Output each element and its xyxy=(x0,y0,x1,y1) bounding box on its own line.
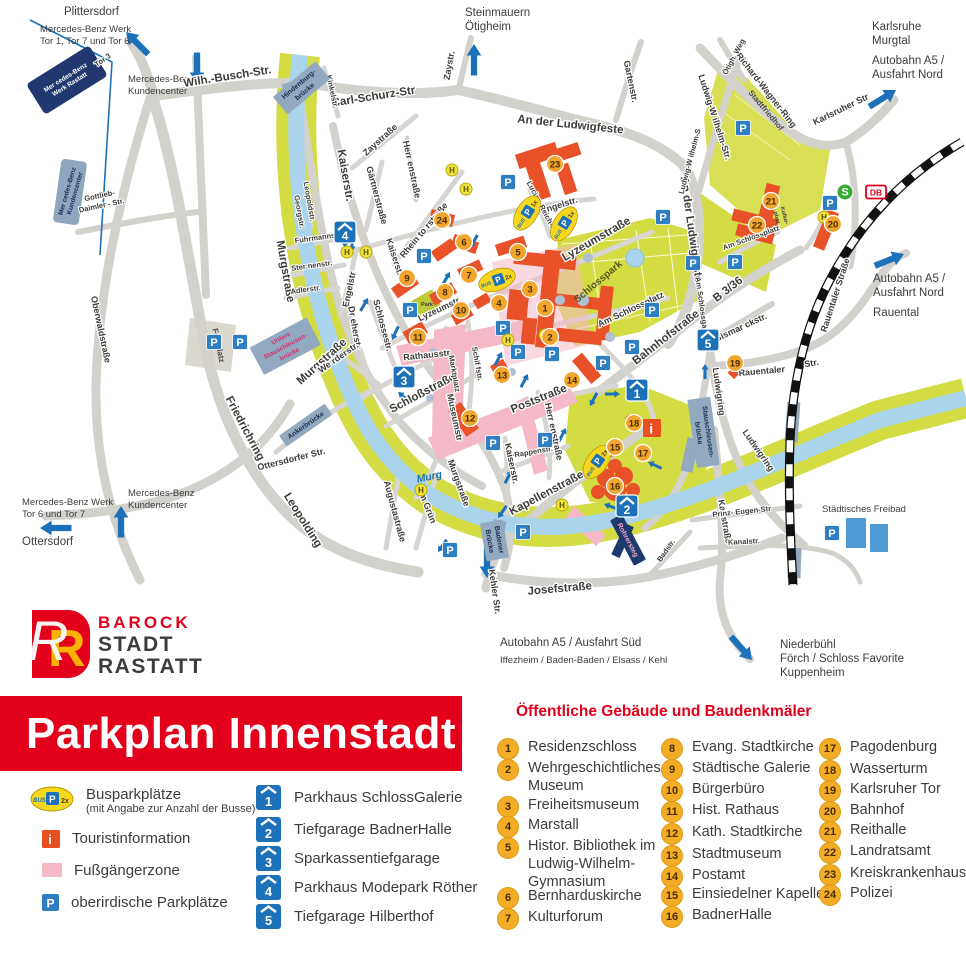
garage-legend-item-5: 5 Tiefgarage Hilberthof xyxy=(256,904,434,929)
parking-icon: P xyxy=(596,356,611,371)
parking-icon: P xyxy=(486,436,501,451)
svg-text:22: 22 xyxy=(752,220,763,231)
map-label: Ottersdorfer Str. xyxy=(256,446,326,473)
svg-text:P: P xyxy=(47,897,55,911)
buildings-heading: Öffentliche Gebäude und Baudenkmäler xyxy=(516,703,811,721)
landmark-marker-10: 10 xyxy=(453,302,470,319)
map-label: Zaystr. xyxy=(442,50,457,80)
map-label: Städtisches Freibad xyxy=(822,504,906,515)
map-label: Park xyxy=(421,302,434,308)
svg-text:5: 5 xyxy=(705,337,712,351)
map-label: Kaiserstr. xyxy=(334,149,355,203)
svg-text:P: P xyxy=(599,358,606,370)
map-label: Iffezheim / Baden-Baden / Elsass / Kehl xyxy=(500,655,667,666)
direction-arrow-icon xyxy=(40,521,72,536)
map-label: Bismar ckstr. xyxy=(713,311,768,344)
landmark-marker-2: 2 xyxy=(542,329,559,346)
parking-icon: P xyxy=(686,256,701,271)
building-number-badge: 21 xyxy=(819,821,841,843)
building-label: Bernharduskirche xyxy=(528,887,679,905)
svg-text:1: 1 xyxy=(542,303,548,314)
landmark-marker-1: 1 xyxy=(537,300,554,317)
svg-text:4: 4 xyxy=(496,298,502,309)
building-label: Kreiskrankenhaus xyxy=(850,864,966,882)
map-label: Engelstr xyxy=(340,270,357,308)
svg-text:18: 18 xyxy=(629,418,640,429)
tourist-info-icon: i xyxy=(643,419,661,437)
building-item-16: 16 BadnerHalle xyxy=(661,906,843,928)
svg-text:H: H xyxy=(363,248,369,257)
building-number-badge: 16 xyxy=(661,906,683,928)
svg-text:i: i xyxy=(649,421,653,437)
svg-text:4: 4 xyxy=(342,229,349,243)
svg-text:Herr enstraße: Herr enstraße xyxy=(401,140,423,199)
bus-stop-icon: H xyxy=(446,164,458,176)
svg-text:S: S xyxy=(841,187,848,199)
svg-text:24: 24 xyxy=(437,215,448,226)
building-number-badge: 24 xyxy=(819,884,841,906)
svg-text:Mercedes-Benz WerkTor 1, Tor 7: Mercedes-Benz WerkTor 1, Tor 7 und Tor 6 xyxy=(40,24,131,47)
svg-text:Engelstr: Engelstr xyxy=(340,270,357,308)
map-canvas: Mer cedes-BenzWerk RastattMer cedes-Benz… xyxy=(0,0,966,690)
svg-text:Ankerbrücke: Ankerbrücke xyxy=(287,411,326,441)
city-map: Mer cedes-BenzWerk RastattMer cedes-Benz… xyxy=(0,0,966,690)
legend-bus-label: Busparkplätze xyxy=(86,786,255,803)
svg-text:Park: Park xyxy=(421,302,434,308)
building-item-18: 18 Wasserturm xyxy=(819,760,966,782)
svg-text:12: 12 xyxy=(465,413,476,424)
svg-text:i: i xyxy=(48,832,52,847)
building-number-badge: 20 xyxy=(819,801,841,823)
landmark-marker-13: 13 xyxy=(494,367,511,384)
svg-text:11: 11 xyxy=(413,332,424,343)
parking-icon: P xyxy=(728,255,743,270)
db-icon: DB xyxy=(866,186,886,199)
svg-text:Ottersdorfer Str.: Ottersdorfer Str. xyxy=(256,446,326,473)
building-number-badge: 5 xyxy=(497,837,519,859)
building-label: BadnerHalle xyxy=(692,906,843,924)
building-label: Kulturforum xyxy=(528,908,679,926)
svg-text:Autobahn A5 / Ausfahrt Süd: Autobahn A5 / Ausfahrt Süd xyxy=(500,637,641,649)
garage-icon: 4 xyxy=(256,875,281,900)
parking-icon: P xyxy=(538,433,553,448)
garage-label: Sparkassentiefgarage xyxy=(294,850,440,867)
map-label: Autobahn A5 / Ausfahrt Süd xyxy=(500,637,641,649)
city-logo-emblem: R R xyxy=(26,610,90,678)
bus-stop-icon: H xyxy=(360,246,372,258)
building-item-1: 1 Residenzschloss xyxy=(497,738,679,760)
garage-legend-item-2: 2 Tiefgarage BadnerHalle xyxy=(256,817,452,842)
parking-icon: P xyxy=(443,543,458,558)
map-label: Plittersdorf xyxy=(64,6,120,18)
landmark-marker-20: 20 xyxy=(825,216,842,233)
parking-icon: P xyxy=(516,525,531,540)
emblem-r-white: R xyxy=(28,610,68,672)
building-label: Residenzschloss xyxy=(528,738,679,756)
logo-line-stadt: STADT xyxy=(98,634,203,656)
parking-icon: P xyxy=(501,175,516,190)
map-label: Kanalstr. xyxy=(728,536,760,547)
building-number-badge: 4 xyxy=(497,816,519,838)
svg-text:KarlsruheMurgtal: KarlsruheMurgtal xyxy=(872,21,921,47)
svg-text:23: 23 xyxy=(550,159,561,170)
building-number-badge: 23 xyxy=(819,864,841,886)
bus-stop-icon: H xyxy=(460,183,472,195)
map-label: Karlsruher Str xyxy=(811,91,870,127)
landmark-marker-11: 11 xyxy=(410,329,427,346)
svg-text:Zaystraße: Zaystraße xyxy=(361,122,399,158)
building-label: Freiheitsmuseum xyxy=(528,796,679,814)
svg-text:P: P xyxy=(548,349,555,361)
one-way-arrow-icon xyxy=(518,372,531,389)
building-label: Pagodenburg xyxy=(850,738,966,756)
svg-text:2: 2 xyxy=(547,332,552,343)
parking-icon: P xyxy=(42,894,59,911)
landmark-marker-8: 8 xyxy=(437,284,454,301)
svg-text:BUS: BUS xyxy=(33,798,46,804)
building-number-badge: 3 xyxy=(497,796,519,818)
svg-text:NiederbühlFörch / Schloss Favo: NiederbühlFörch / Schloss FavoriteKuppen… xyxy=(780,639,904,679)
building-item-13: 13 Stadtmuseum xyxy=(661,845,843,867)
building-label: Karlsruher Tor xyxy=(850,780,966,798)
garage-legend-item-1: 1 Parkhaus SchlossGalerie xyxy=(256,785,462,810)
legend-tourist-label: Touristinformation xyxy=(72,830,190,847)
building-label: Landratsamt xyxy=(850,842,966,860)
svg-text:2: 2 xyxy=(624,503,631,517)
legend-pedestrian: Fußgängerzone xyxy=(42,862,180,879)
parkplan-poster: Mer cedes-BenzWerk RastattMer cedes-Benz… xyxy=(0,0,966,966)
landmark-marker-17: 17 xyxy=(635,445,652,462)
building-item-15: 15 Einsiedelner Kapelle xyxy=(661,885,843,907)
svg-text:17: 17 xyxy=(638,448,649,459)
legend-parking-label: oberirdische Parkplätze xyxy=(71,894,228,911)
building-number-badge: 9 xyxy=(661,759,683,781)
landmark-marker-9: 9 xyxy=(399,270,416,287)
parking-icon: P xyxy=(207,335,222,350)
svg-text:Kaiserstr.: Kaiserstr. xyxy=(334,149,355,203)
building-item-3: 3 Freiheitsmuseum xyxy=(497,796,679,818)
garage-label: Tiefgarage BadnerHalle xyxy=(294,821,452,838)
building-item-9: 9 Städtische Galerie xyxy=(661,759,843,781)
svg-text:3: 3 xyxy=(401,374,408,388)
title-banner: Parkplan Innenstadt xyxy=(0,696,462,771)
svg-text:Bismar ckstr.: Bismar ckstr. xyxy=(713,311,768,344)
map-label: Mercedes-BenzKundencenter xyxy=(128,488,195,511)
city-logo-wordmark: BAROCK STADT RASTATT xyxy=(98,612,203,678)
landmark-marker-4: 4 xyxy=(491,295,508,312)
page-title: Parkplan Innenstadt xyxy=(0,696,462,758)
parking-icon: P xyxy=(736,121,751,136)
svg-text:Autobahn A5 /Ausfahrt Nord: Autobahn A5 /Ausfahrt Nord xyxy=(873,273,946,299)
building-label: Marstall xyxy=(528,816,679,834)
landmark-marker-6: 6 xyxy=(456,234,473,251)
mercedes-box: Mer cedes-BenzWerk Rastatt xyxy=(26,45,108,115)
building-number-badge: 15 xyxy=(661,885,683,907)
city-logo: R R BAROCK STADT RASTATT xyxy=(26,610,256,682)
legend-tourist-info: i Touristinformation xyxy=(42,830,190,848)
svg-text:P: P xyxy=(514,347,521,359)
building-item-4: 4 Marstall xyxy=(497,816,679,838)
map-label: Str. xyxy=(803,357,819,369)
building-item-20: 20 Bahnhof xyxy=(819,801,966,823)
svg-text:H: H xyxy=(344,248,350,257)
svg-text:Städtisches Freibad: Städtisches Freibad xyxy=(822,504,906,515)
garage-icon: 5 xyxy=(256,904,281,929)
svg-text:20: 20 xyxy=(828,219,839,230)
parking-icon: P xyxy=(496,321,511,336)
garage-icon: 1 xyxy=(256,785,281,810)
svg-text:19: 19 xyxy=(730,358,741,369)
map-label: Ottersdorf xyxy=(22,536,74,548)
landmark-marker-7: 7 xyxy=(461,267,478,284)
landmark-marker-12: 12 xyxy=(462,410,479,427)
landmark-marker-18: 18 xyxy=(626,415,643,432)
parking-icon: P xyxy=(645,303,660,318)
building-number-badge: 8 xyxy=(661,738,683,760)
svg-text:21: 21 xyxy=(766,196,777,207)
parking-icon: P xyxy=(825,526,840,541)
svg-text:9: 9 xyxy=(404,273,409,284)
svg-text:2: 2 xyxy=(265,826,272,841)
svg-text:P: P xyxy=(499,323,506,335)
map-label: SteinmauernÖtigheim xyxy=(465,7,530,33)
garage-label: Parkhaus Modepark Röther xyxy=(294,879,477,896)
bus-stop-icon: H xyxy=(341,246,353,258)
svg-text:15: 15 xyxy=(610,442,621,453)
building-item-5: 5 Histor. Bibliothek im Ludwig-Wilhelm-G… xyxy=(497,837,679,891)
building-number-badge: 1 xyxy=(497,738,519,760)
svg-text:H: H xyxy=(418,486,424,495)
svg-text:P: P xyxy=(406,305,413,317)
building-label: Histor. Bibliothek im Ludwig-Wilhelm-Gym… xyxy=(528,837,679,891)
building-item-11: 11 Hist. Rathaus xyxy=(661,801,843,823)
legend-bus-parking: BUS P 2x Busparkplätze (mit Angabe zur A… xyxy=(30,786,255,815)
building-item-24: 24 Polizei xyxy=(819,884,966,906)
parking-icon: P xyxy=(417,249,432,264)
svg-text:6: 6 xyxy=(461,237,466,248)
garage-label: Parkhaus SchlossGalerie xyxy=(294,789,462,806)
logo-line-rastatt: RASTATT xyxy=(98,656,203,678)
bus-stop-icon: H xyxy=(556,499,568,511)
building-number-badge: 7 xyxy=(497,908,519,930)
svg-text:16: 16 xyxy=(610,481,621,492)
svg-text:8: 8 xyxy=(442,287,447,298)
building-number-badge: 2 xyxy=(497,759,519,781)
svg-text:Mercedes-BenzKundencenter: Mercedes-BenzKundencenter xyxy=(128,488,195,511)
svg-text:5: 5 xyxy=(265,913,272,928)
svg-text:P: P xyxy=(828,528,835,540)
svg-text:P: P xyxy=(420,251,427,263)
svg-text:P: P xyxy=(504,177,511,189)
landmark-marker-23: 23 xyxy=(547,156,564,173)
svg-text:Kanalstr.: Kanalstr. xyxy=(728,536,760,547)
svg-text:1: 1 xyxy=(634,387,641,401)
parking-icon: P xyxy=(545,347,560,362)
svg-text:3: 3 xyxy=(265,855,272,870)
building-number-badge: 11 xyxy=(661,801,683,823)
svg-text:P: P xyxy=(519,527,526,539)
svg-text:P: P xyxy=(648,305,655,317)
garage-marker-2: 2 xyxy=(616,495,638,517)
building-label: Bahnhof xyxy=(850,801,966,819)
svg-text:5: 5 xyxy=(515,247,521,258)
garage-label: Tiefgarage Hilberthof xyxy=(294,908,434,925)
building-item-19: 19 Karlsruher Tor xyxy=(819,780,966,802)
garage-legend-item-4: 4 Parkhaus Modepark Röther xyxy=(256,875,477,900)
svg-text:H: H xyxy=(559,501,565,510)
landmark-marker-19: 19 xyxy=(727,355,744,372)
svg-text:H: H xyxy=(505,336,511,345)
map-label: Herr enstraße xyxy=(401,140,423,199)
building-label: Polizei xyxy=(850,884,966,902)
svg-text:10: 10 xyxy=(456,305,467,316)
building-item-8: 8 Evang. Stadtkirche xyxy=(661,738,843,760)
parking-icon: P xyxy=(823,196,838,211)
svg-text:7: 7 xyxy=(466,270,471,281)
svg-text:Karlsruher Str: Karlsruher Str xyxy=(811,91,870,127)
building-item-21: 21 Reithalle xyxy=(819,821,966,843)
svg-text:14: 14 xyxy=(567,375,578,386)
building-number-badge: 12 xyxy=(661,823,683,845)
building-item-23: 23 Kreiskrankenhaus xyxy=(819,864,966,886)
svg-text:P: P xyxy=(541,435,548,447)
svg-text:DB: DB xyxy=(870,187,882,197)
building-item-12: 12 Kath. Stadtkirche xyxy=(661,823,843,845)
legend-surface-parking: P oberirdische Parkplätze xyxy=(42,894,228,911)
svg-text:P: P xyxy=(659,212,666,224)
parking-icon: P xyxy=(403,303,418,318)
building-item-22: 22 Landratsamt xyxy=(819,842,966,864)
svg-text:P: P xyxy=(49,795,56,806)
pedestrian-zone-swatch xyxy=(42,863,62,877)
svg-text:1: 1 xyxy=(265,794,272,809)
landmark-marker-5: 5 xyxy=(510,244,527,261)
svg-text:Iffezheim / Baden-Baden / Elsa: Iffezheim / Baden-Baden / Elsass / Kehl xyxy=(500,655,667,666)
building-number-badge: 17 xyxy=(819,738,841,760)
landmark-marker-3: 3 xyxy=(522,281,539,298)
tourist-info-icon: i xyxy=(42,830,60,848)
building-item-2: 2 Wehrgeschichtliches Museum xyxy=(497,759,679,795)
svg-text:P: P xyxy=(210,337,217,349)
schlosspark-pond xyxy=(626,249,644,267)
svg-text:H: H xyxy=(463,185,469,194)
landmark-marker-21: 21 xyxy=(763,193,780,210)
parking-icon: P xyxy=(625,340,640,355)
building-number-badge: 6 xyxy=(497,887,519,909)
garage-marker-5: 5 xyxy=(697,329,719,351)
landmark-marker-22: 22 xyxy=(749,217,766,234)
parking-icon: P xyxy=(233,335,248,350)
garage-icon: 2 xyxy=(256,817,281,842)
svg-text:H: H xyxy=(449,166,455,175)
landmark-marker-14: 14 xyxy=(564,372,581,389)
svg-text:Str.: Str. xyxy=(803,357,819,369)
svg-text:P: P xyxy=(628,342,635,354)
map-label: Autobahn A5 /Ausfahrt Nord xyxy=(873,273,946,299)
building-label: Wasserturm xyxy=(850,760,966,778)
mercedes-box: Mer cedes-BenzKundencenter xyxy=(53,159,88,226)
garage-marker-4: 4 xyxy=(334,221,356,243)
svg-text:4: 4 xyxy=(265,884,273,899)
bus-stop-icon: H xyxy=(502,334,514,346)
svg-text:P: P xyxy=(826,198,833,210)
landmark-marker-16: 16 xyxy=(607,478,624,495)
svg-text:SteinmauernÖtigheim: SteinmauernÖtigheim xyxy=(465,7,530,33)
map-label: Zaystraße xyxy=(361,122,399,158)
svg-text:Autobahn A5 /Ausfahrt Nord: Autobahn A5 /Ausfahrt Nord xyxy=(872,55,945,81)
building-number-badge: 22 xyxy=(819,842,841,864)
svg-text:P: P xyxy=(236,337,243,349)
map-label: NiederbühlFörch / Schloss FavoriteKuppen… xyxy=(780,639,904,679)
map-label: KarlsruheMurgtal xyxy=(872,21,921,47)
svg-text:Rauental: Rauental xyxy=(873,307,919,319)
map-label: Mercedes-Benz WerkTor 1, Tor 7 und Tor 6 xyxy=(40,24,131,47)
garage-legend-item-3: 3 Sparkassentiefgarage xyxy=(256,846,440,871)
building-label: Wehrgeschichtliches Museum xyxy=(528,759,679,795)
bus-parking-icon: BUS P 2x xyxy=(30,786,74,812)
building-label: Reithalle xyxy=(850,821,966,839)
garage-marker-1: 1 xyxy=(626,379,648,401)
map-label: Rauental xyxy=(873,307,919,319)
landmark-marker-15: 15 xyxy=(607,439,624,456)
svg-text:P: P xyxy=(689,258,696,270)
building-item-7: 7 Kulturforum xyxy=(497,908,679,930)
svg-text:2x: 2x xyxy=(61,798,69,805)
map-label: Autobahn A5 /Ausfahrt Nord xyxy=(872,55,945,81)
building-number-badge: 13 xyxy=(661,845,683,867)
building-item-6: 6 Bernharduskirche xyxy=(497,887,679,909)
svg-text:P: P xyxy=(739,123,746,135)
svg-text:P: P xyxy=(489,438,496,450)
building-number-badge: 19 xyxy=(819,780,841,802)
svg-text:Zaystr.: Zaystr. xyxy=(442,50,457,80)
garage-icon: 3 xyxy=(256,846,281,871)
map-label: Oberwaldstraße xyxy=(89,295,113,364)
svg-text:Oberwaldstraße: Oberwaldstraße xyxy=(89,295,113,364)
parking-icon: P xyxy=(511,345,526,360)
legend-pedestrian-label: Fußgängerzone xyxy=(74,862,180,879)
building-number-badge: 18 xyxy=(819,760,841,782)
building-item-17: 17 Pagodenburg xyxy=(819,738,966,760)
svg-text:13: 13 xyxy=(497,370,508,381)
bus-stop-icon: H xyxy=(415,484,427,496)
svg-text:Ottersdorf: Ottersdorf xyxy=(22,536,74,548)
building-number-badge: 10 xyxy=(661,780,683,802)
sbahn-icon: S xyxy=(837,184,853,200)
svg-text:3: 3 xyxy=(527,284,532,295)
legend-bus-sub: (mit Angabe zur Anzahl der Busse) xyxy=(86,803,255,815)
parking-icon: P xyxy=(656,210,671,225)
building-item-10: 10 Bürgerbüro xyxy=(661,780,843,802)
svg-text:P: P xyxy=(446,545,453,557)
logo-line-barock: BAROCK xyxy=(98,612,203,634)
landmark-marker-24: 24 xyxy=(434,212,451,229)
svg-text:Plittersdorf: Plittersdorf xyxy=(64,6,120,18)
svg-text:P: P xyxy=(731,257,738,269)
garage-marker-3: 3 xyxy=(393,366,415,388)
